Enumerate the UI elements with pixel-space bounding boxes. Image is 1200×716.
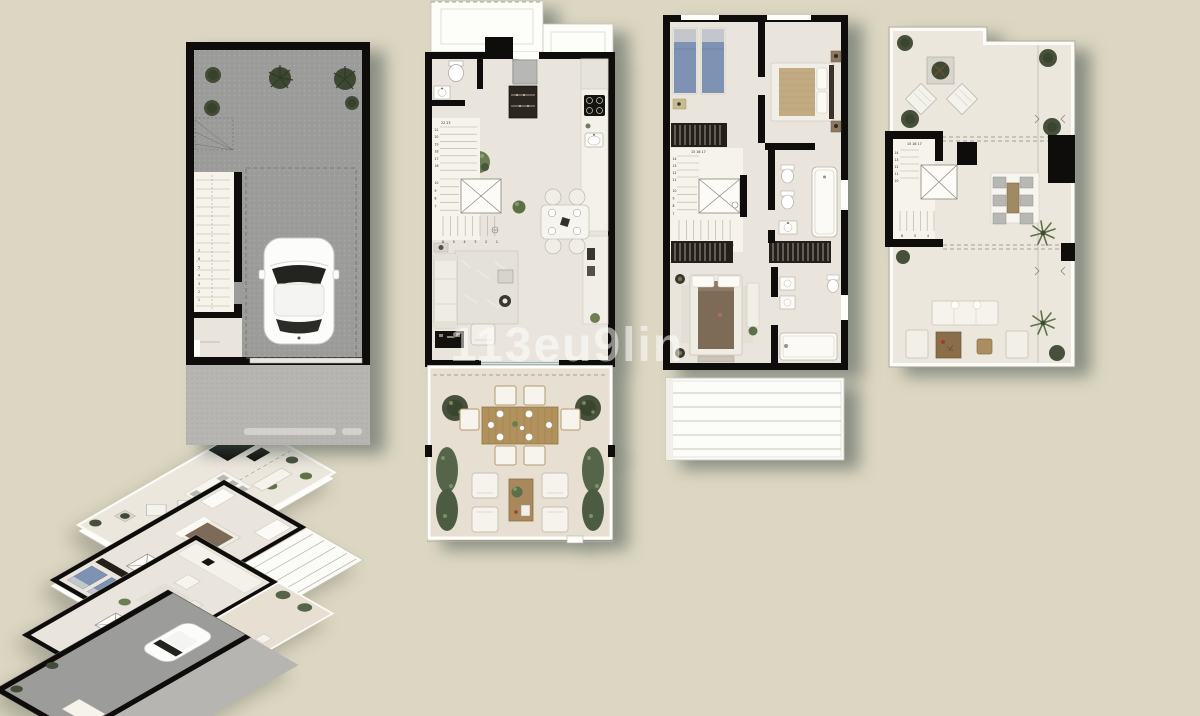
floor-plan-garage: 7654321 [186, 42, 370, 445]
wardrobe [671, 241, 733, 263]
stairwell-void [461, 179, 501, 213]
faded-stamp [342, 428, 362, 435]
garage-door [250, 358, 362, 363]
window [767, 15, 811, 20]
wc-toilet [781, 165, 794, 183]
pillow [692, 276, 714, 287]
sofa [434, 254, 457, 328]
driveway [186, 365, 370, 445]
terrace-gate [567, 536, 583, 543]
outdoor-sofa [932, 301, 998, 325]
window [841, 295, 848, 320]
wc-toilet [827, 275, 839, 293]
shower-tub [780, 333, 837, 360]
terrace [425, 366, 615, 544]
sink-icon [585, 133, 603, 147]
windshield [272, 265, 326, 285]
entry-lobby [194, 312, 242, 357]
coffee-table [936, 332, 961, 358]
watermark: 113eu9lin [450, 318, 684, 373]
wc-toilet [449, 61, 464, 82]
faded-stamp [244, 428, 336, 435]
double-bedroom [771, 51, 841, 132]
wash-basin [434, 86, 450, 99]
pitched-roof [666, 378, 844, 460]
service-shaft [1048, 135, 1075, 183]
coffee-table [509, 479, 533, 521]
staircase: 7654321 [194, 172, 242, 318]
single-bed [673, 28, 697, 94]
console [747, 283, 759, 327]
pillow [817, 92, 827, 113]
side-mirror [333, 270, 339, 279]
pouf [977, 339, 992, 354]
lounge-chair [1006, 331, 1028, 358]
bidet [781, 191, 794, 209]
roof-dining-set [991, 173, 1039, 224]
vanity [779, 221, 797, 234]
plant-icon [513, 201, 526, 214]
isometric-stack [0, 418, 430, 716]
plant-icon [749, 327, 758, 336]
pillow [817, 68, 827, 89]
pillow [718, 276, 740, 287]
floor-plan-first: 15 16 17 14131211 10987 6 5 [663, 15, 848, 462]
pillow [674, 29, 696, 42]
entry-door [194, 340, 200, 356]
stove-icon [584, 95, 605, 116]
stair-numbers: 15 16 17 [691, 150, 706, 154]
coffee-table [498, 270, 513, 283]
floor-plan-ground: 22 23 212019181716 10987 [425, 0, 618, 545]
bathtub [812, 167, 837, 237]
pillow [702, 29, 724, 42]
wood-table [1007, 183, 1019, 213]
single-bed [701, 28, 725, 94]
window [841, 180, 848, 210]
herb-pot [586, 124, 591, 129]
car [259, 238, 339, 344]
floor-plan-roof: 15 16 17 1413121110 6 5 4 [885, 15, 1078, 375]
side-mirror [259, 270, 265, 279]
wardrobe [769, 241, 831, 263]
planter [927, 57, 954, 84]
sideboard [583, 236, 608, 324]
stair-numbers: 22 23 [441, 121, 450, 125]
double-bed [771, 63, 834, 121]
service-shaft [1061, 243, 1075, 261]
headboard [829, 65, 834, 119]
bench [698, 356, 734, 362]
stair-numbers: 15 16 17 [907, 142, 922, 146]
storage-closet [513, 60, 537, 84]
window [681, 15, 719, 20]
floorplan-sheet: 7654321 [0, 0, 1200, 716]
lounge-chair [906, 330, 928, 358]
wardrobe [671, 123, 727, 147]
wardrobe [509, 86, 537, 118]
stairwell-void [921, 165, 957, 199]
staircase: 15 16 17 14131211 10987 6 5 [670, 148, 747, 252]
double-bed [690, 275, 742, 362]
tall-units [581, 59, 608, 89]
